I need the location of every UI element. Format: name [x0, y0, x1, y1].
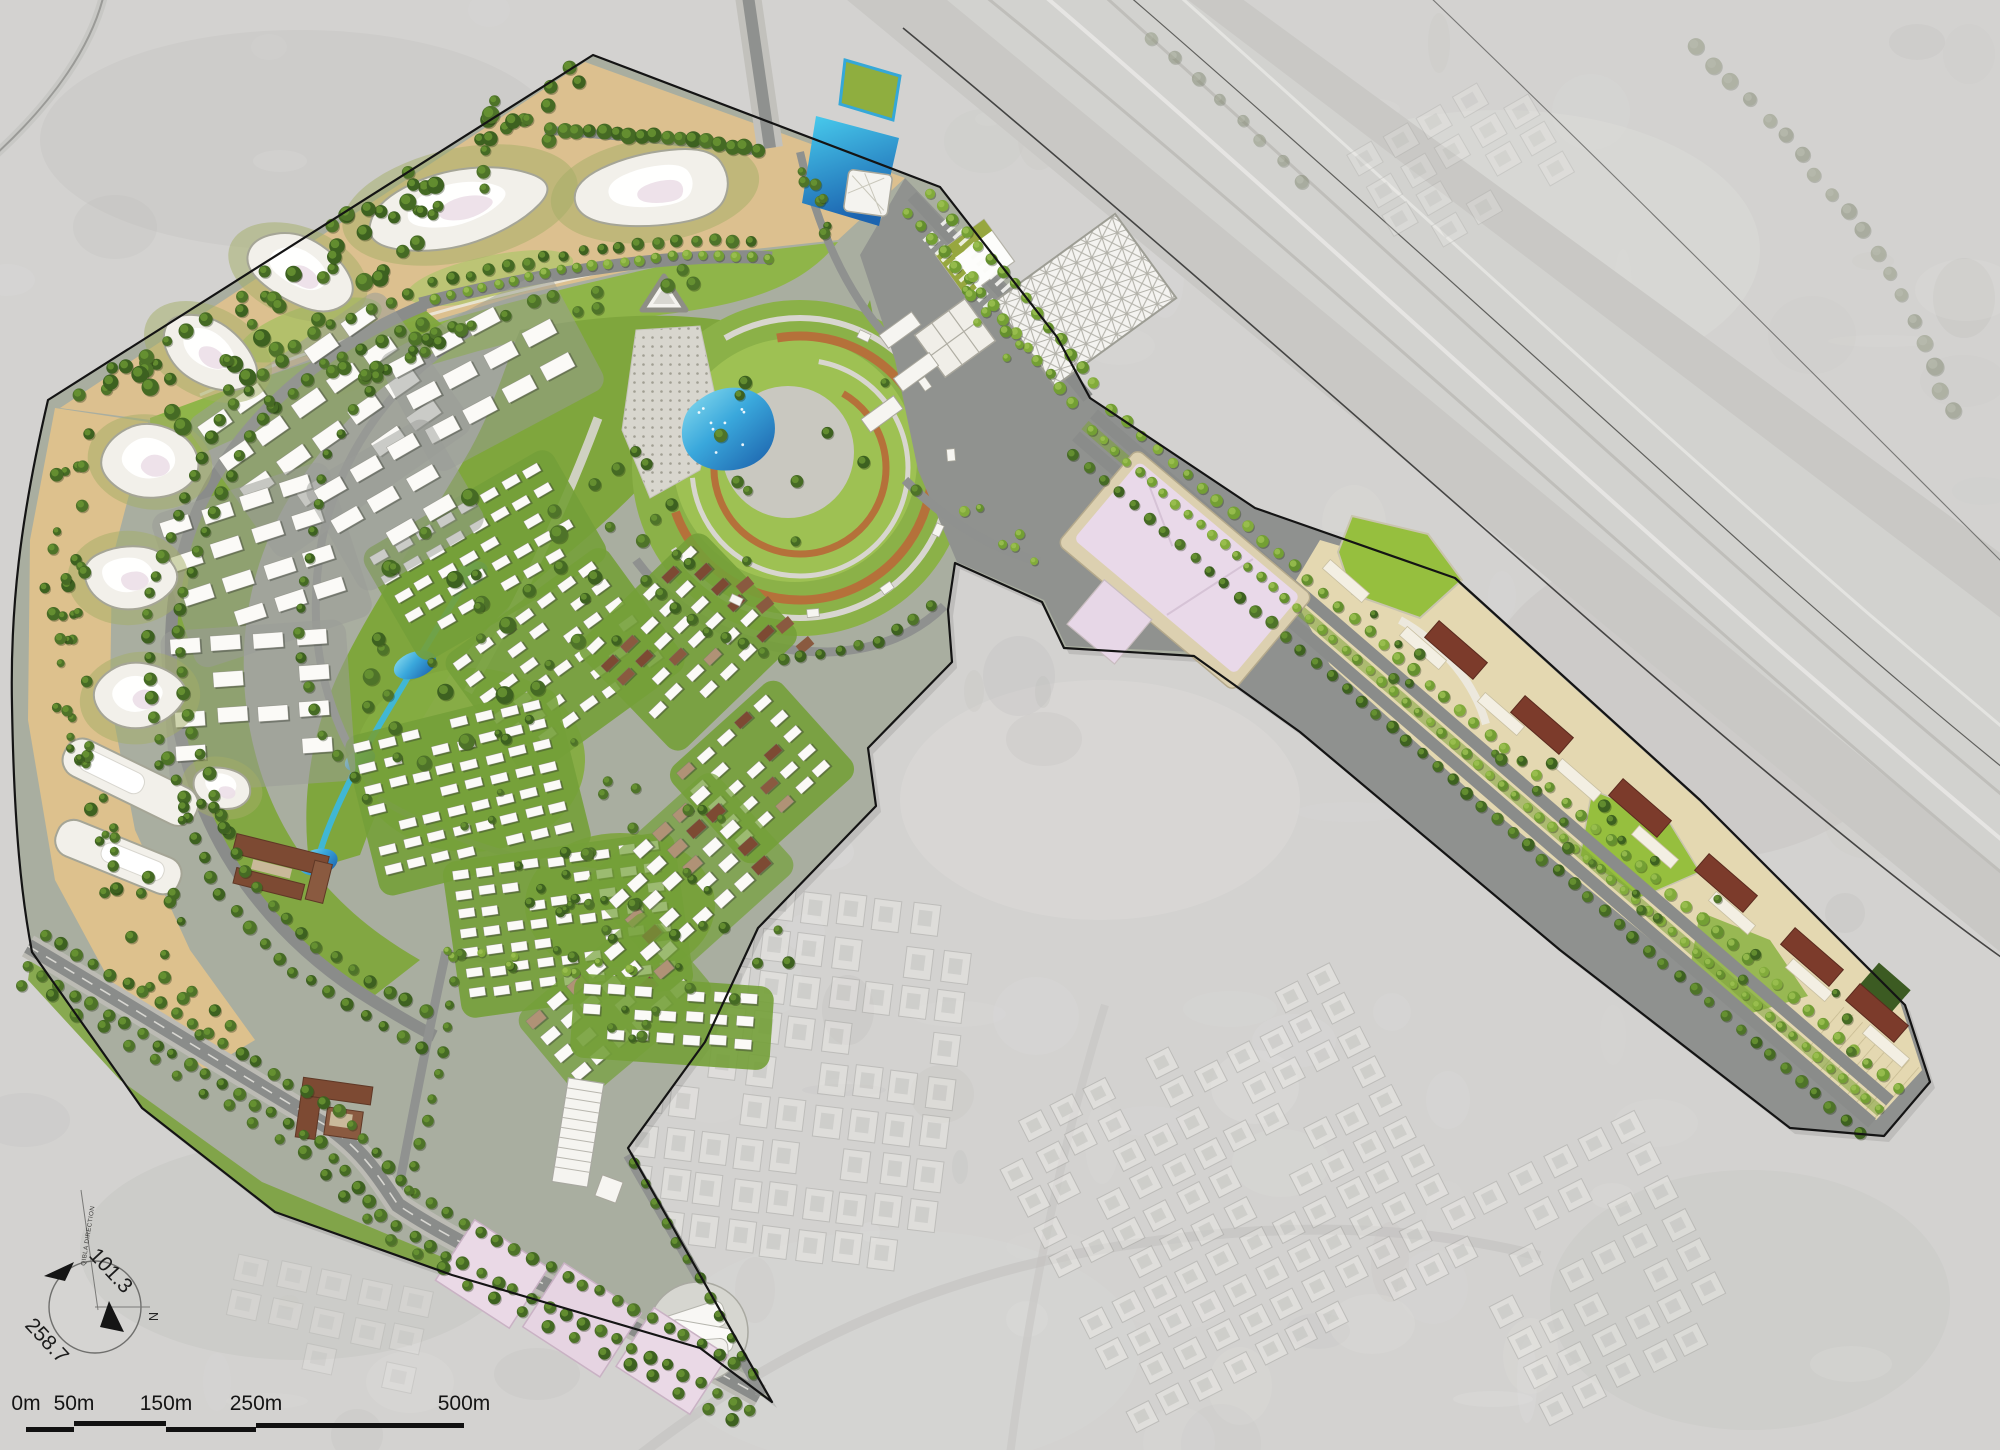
masterplan-map: 101.3 258.7 N QIBLA DIRECTION 0m 50m 150…	[0, 0, 2000, 1450]
masterplan-page: 101.3 258.7 N QIBLA DIRECTION 0m 50m 150…	[0, 0, 2000, 1450]
scale-label-500: 500m	[438, 1392, 491, 1415]
villa-cluster	[569, 973, 774, 1071]
scale-segment	[74, 1421, 166, 1426]
north-label: N	[146, 1312, 160, 1321]
scale-segment	[26, 1427, 74, 1432]
scale-segment	[256, 1423, 464, 1428]
scale-segment	[166, 1427, 256, 1432]
sail-pavilion	[843, 169, 892, 217]
scale-label-50: 50m	[54, 1392, 95, 1415]
scale-label-150: 150m	[140, 1392, 193, 1415]
scale-label-0: 0m	[11, 1392, 40, 1415]
scale-label-250: 250m	[230, 1392, 283, 1415]
